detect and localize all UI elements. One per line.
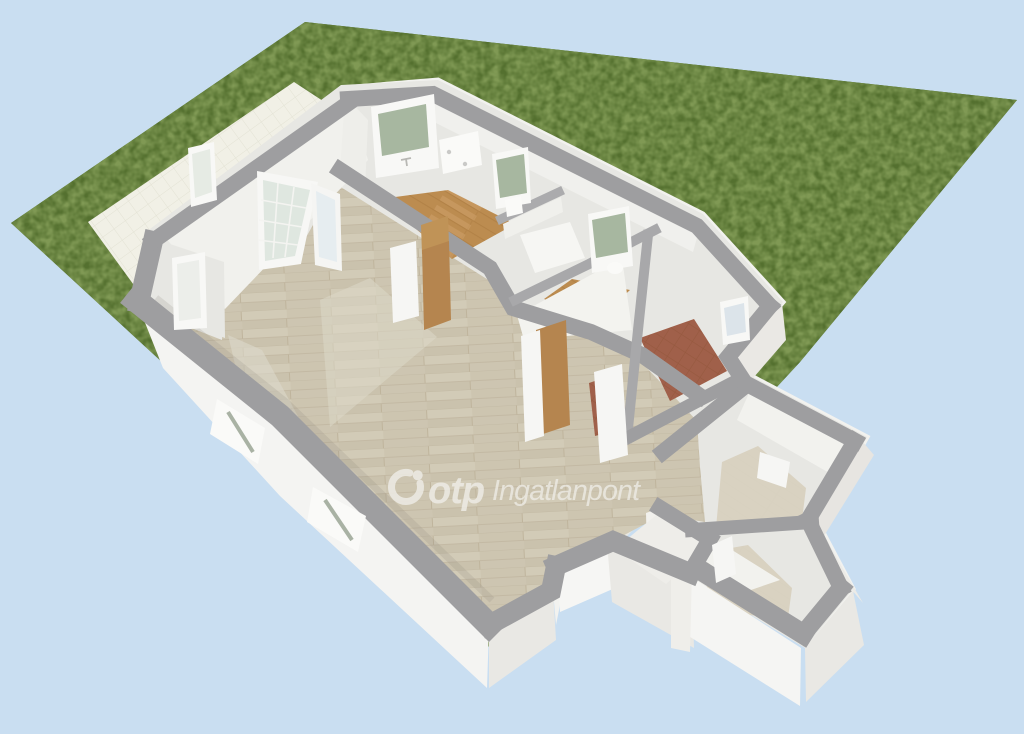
svg-text:otp: otp bbox=[428, 470, 484, 512]
svg-text:Ingatlanpont: Ingatlanpont bbox=[492, 475, 641, 507]
